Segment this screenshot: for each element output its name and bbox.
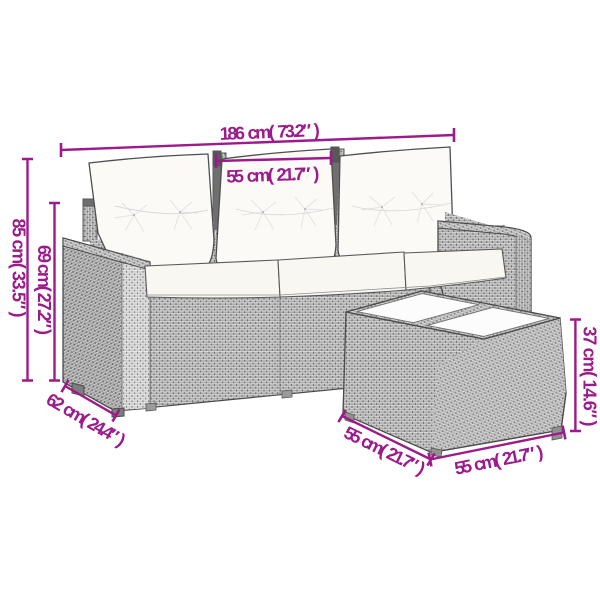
svg-text:186 cm( 73.2″ ): 186 cm( 73.2″ ) <box>219 120 320 144</box>
svg-text:55 cm( 21.7″ ): 55 cm( 21.7″ ) <box>226 163 320 186</box>
svg-text:37 cm( 14.6″ ): 37 cm( 14.6″ ) <box>580 327 600 427</box>
svg-text:69 cm( 27.2″ ): 69 cm( 27.2″ ) <box>34 245 54 335</box>
svg-text:85 cm( 33.5″ ): 85 cm( 33.5″ ) <box>9 219 29 318</box>
